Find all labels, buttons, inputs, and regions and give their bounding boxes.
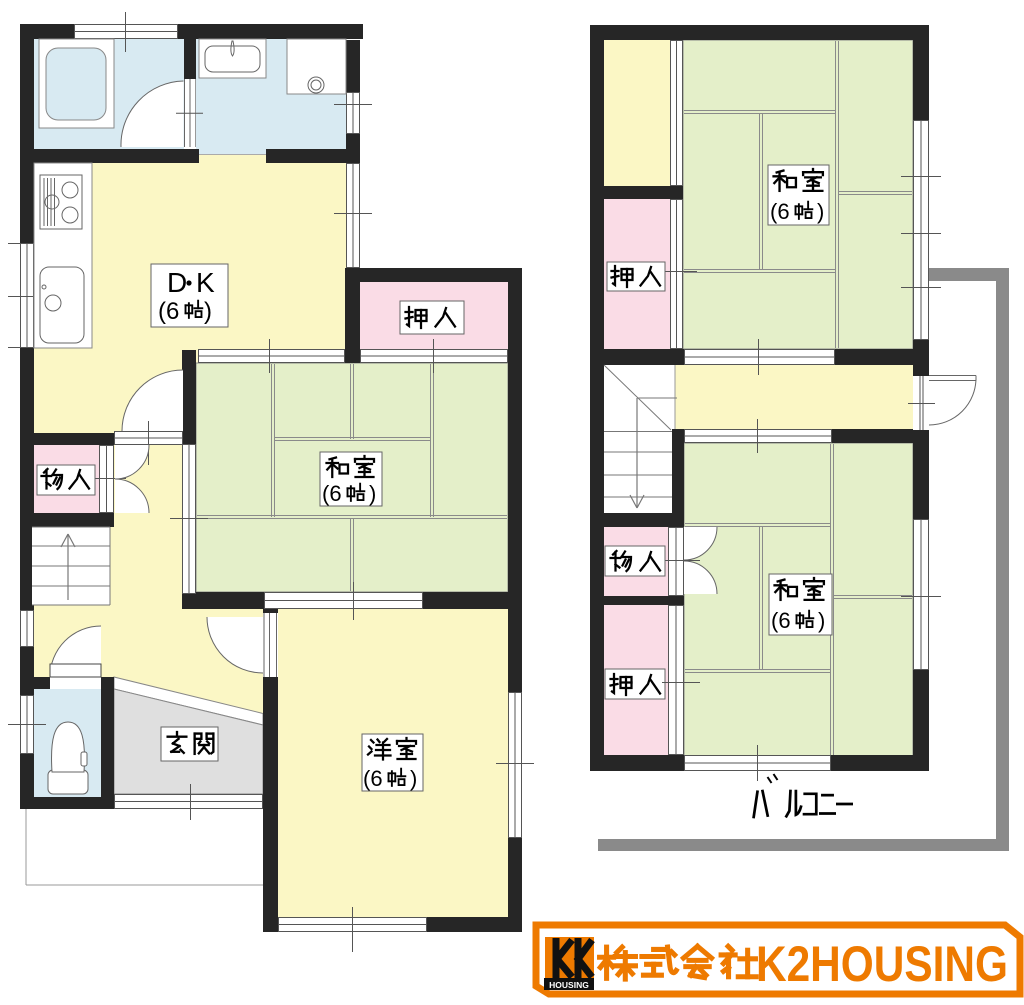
svg-text:K2HOUSING: K2HOUSING (756, 936, 1008, 992)
svg-text:K: K (196, 267, 215, 298)
svg-text:(6: (6 (363, 766, 383, 791)
svg-text:(6: (6 (322, 481, 342, 506)
svg-text:): ) (204, 298, 212, 325)
svg-text:): ) (369, 481, 376, 506)
svg-text:): ) (410, 766, 417, 791)
svg-text:): ) (818, 608, 825, 633)
svg-text:(6: (6 (770, 199, 790, 224)
svg-text:D: D (167, 267, 187, 298)
svg-text:): ) (817, 199, 824, 224)
svg-text:HOUSING: HOUSING (549, 980, 589, 990)
svg-text:(6: (6 (158, 298, 179, 325)
svg-text:(6: (6 (771, 608, 791, 633)
